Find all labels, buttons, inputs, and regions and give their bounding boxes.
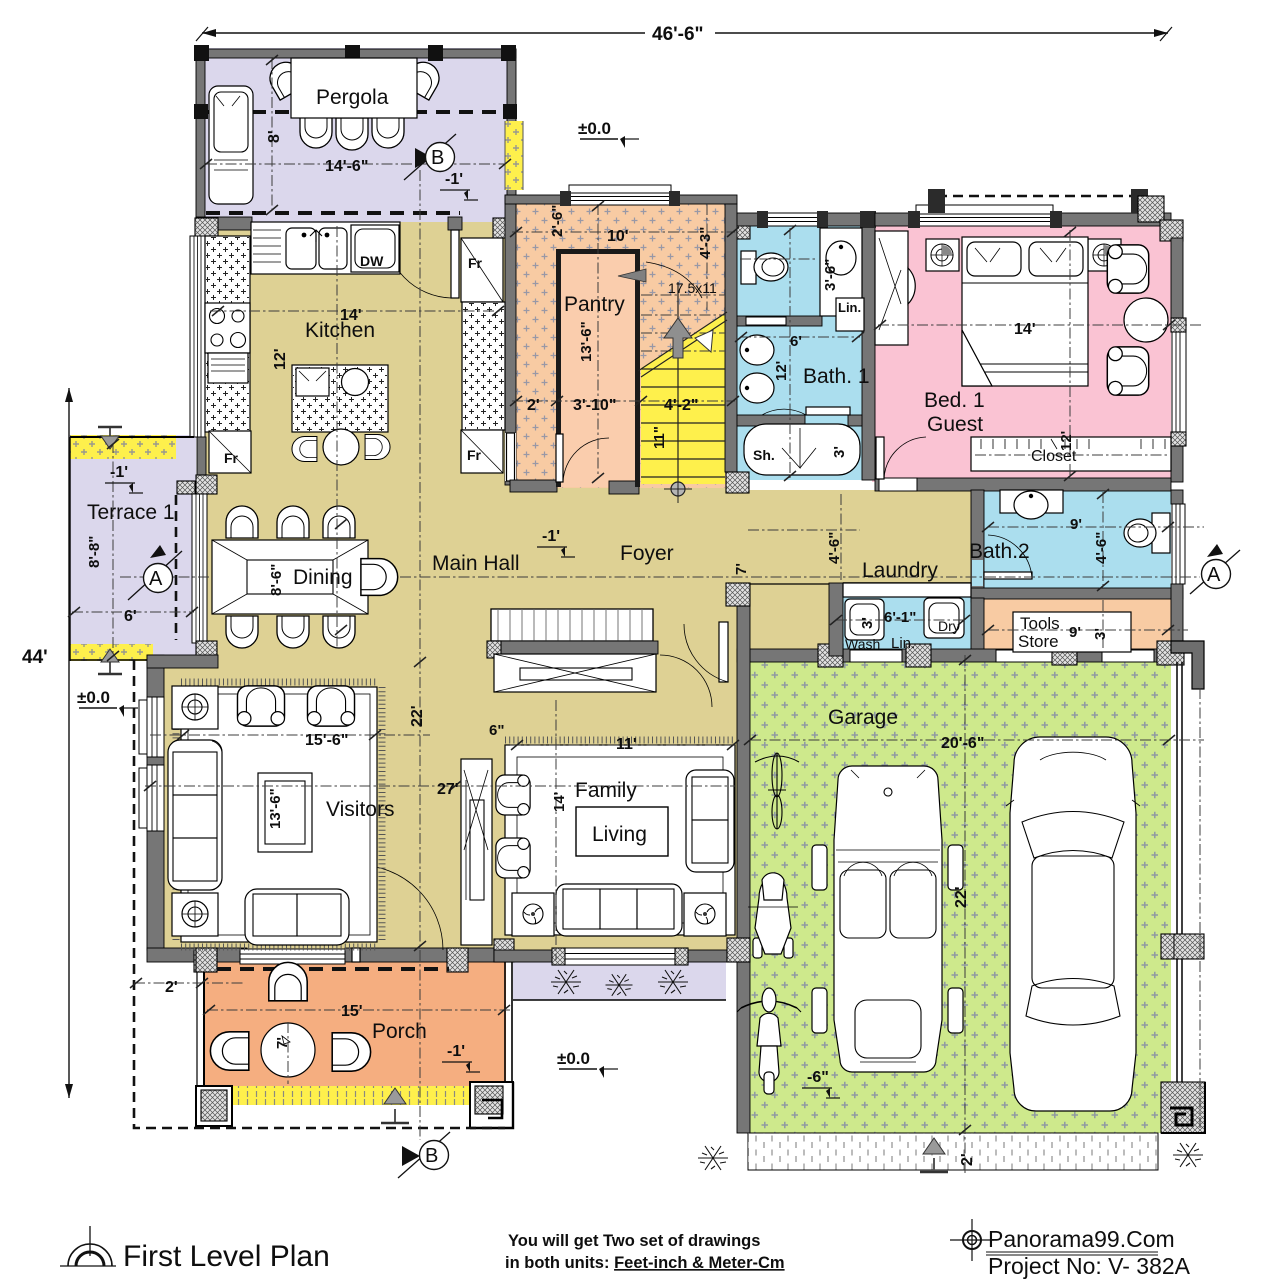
svg-text:9': 9' [1070,516,1082,533]
svg-text:9': 9' [1069,624,1081,641]
svg-text:Main Hall: Main Hall [432,552,520,575]
svg-text:12': 12' [272,348,289,370]
svg-text:B: B [425,1145,438,1167]
svg-text:Fr: Fr [468,255,483,271]
svg-text:6': 6' [790,333,802,350]
svg-text:Sh.: Sh. [753,447,775,463]
svg-text:22': 22' [409,705,426,727]
svg-text:8'-6": 8'-6" [268,564,285,596]
svg-text:Project No: V- 382A: Project No: V- 382A [988,1253,1191,1279]
svg-text:Tools: Tools [1020,614,1060,633]
svg-text:12': 12' [1058,431,1075,451]
svg-text:Panorama99.Com: Panorama99.Com [988,1226,1175,1252]
svg-text:Guest: Guest [927,413,983,436]
svg-text:Lin.: Lin. [838,300,861,315]
svg-text:DW: DW [360,253,384,269]
svg-text:Porch: Porch [372,1020,427,1043]
svg-text:-1': -1' [447,1043,465,1060]
svg-text:15': 15' [341,1003,363,1020]
svg-text:in both units: Feet-inch & Met: in both units: Feet-inch & Meter-Cm [505,1254,785,1272]
svg-text:4'-6": 4'-6" [1093,532,1110,564]
svg-text:B: B [431,147,444,169]
svg-text:3': 3' [859,617,876,629]
svg-text:44': 44' [22,647,48,668]
svg-text:22': 22' [953,886,970,908]
svg-text:12': 12' [773,361,790,381]
svg-text:2': 2' [527,397,540,414]
svg-text:2': 2' [165,979,178,996]
svg-text:Dry: Dry [938,618,960,634]
svg-text:3': 3' [1092,628,1109,640]
svg-text:Pergola: Pergola [316,86,389,109]
svg-text:-6": -6" [807,1069,829,1086]
svg-text:14'-6": 14'-6" [325,158,368,175]
svg-text:Wash: Wash [845,636,880,652]
svg-text:±0.0: ±0.0 [77,688,110,707]
svg-text:Bed. 1: Bed. 1 [924,389,985,412]
svg-text:Bath. 1: Bath. 1 [803,365,870,388]
svg-text:Garage: Garage [828,706,898,729]
svg-text:2': 2' [959,1153,976,1166]
svg-text:-1': -1' [445,171,463,188]
svg-text:A: A [1207,564,1221,586]
svg-text:14': 14' [551,792,568,812]
svg-text:7': 7' [274,1037,291,1049]
svg-text:6': 6' [124,608,137,625]
svg-text:Foyer: Foyer [620,542,674,565]
svg-text:15'-6": 15'-6" [305,732,348,749]
svg-text:27': 27' [437,781,459,798]
svg-text:13'-6": 13'-6" [267,788,284,829]
svg-text:8': 8' [266,130,283,143]
svg-text:4'-6": 4'-6" [826,532,843,564]
svg-text:Family: Family [575,779,637,802]
svg-text:Lin.: Lin. [891,635,915,652]
svg-text:Visitors: Visitors [326,798,394,821]
svg-text:14': 14' [340,307,362,324]
svg-text:3': 3' [831,446,848,458]
svg-text:Pantry: Pantry [564,293,625,316]
svg-text:Fr: Fr [467,447,482,463]
svg-text:4'-3": 4'-3" [697,227,714,259]
svg-text:Living: Living [592,823,647,846]
svg-text:2'-6": 2'-6" [549,205,566,237]
svg-text:46'-6": 46'-6" [652,24,704,45]
svg-text:Laundry: Laundry [862,559,938,582]
svg-text:First Level Plan: First Level Plan [123,1240,330,1273]
svg-text:13'-6": 13'-6" [578,321,595,362]
svg-text:You will get Two set of drawin: You will get Two set of drawings [508,1232,760,1250]
svg-text:11': 11' [616,736,637,753]
svg-text:±0.0: ±0.0 [578,119,611,138]
svg-text:20'-6": 20'-6" [941,735,984,752]
svg-text:Store: Store [1018,632,1059,651]
svg-text:7': 7' [733,563,750,575]
svg-text:Dining: Dining [293,566,353,589]
svg-text:Bath.2: Bath.2 [969,540,1030,563]
svg-text:4'-2": 4'-2" [664,397,699,414]
svg-text:Fr: Fr [224,450,239,466]
svg-text:±0.0: ±0.0 [557,1049,590,1068]
svg-text:3'-6": 3'-6" [822,259,839,291]
svg-text:14': 14' [1014,321,1036,338]
svg-text:-1': -1' [110,464,128,481]
svg-text:-1': -1' [542,528,560,545]
svg-text:A: A [149,568,163,590]
svg-text:8'-8": 8'-8" [86,536,103,568]
svg-text:3'-10": 3'-10" [573,397,616,414]
svg-text:10': 10' [607,228,629,245]
svg-text:Terrace 1: Terrace 1 [87,501,175,524]
svg-text:11": 11" [651,426,668,449]
svg-text:6'-1": 6'-1" [884,609,916,626]
svg-text:6": 6" [489,722,504,739]
svg-text:17.5x11: 17.5x11 [668,280,717,296]
